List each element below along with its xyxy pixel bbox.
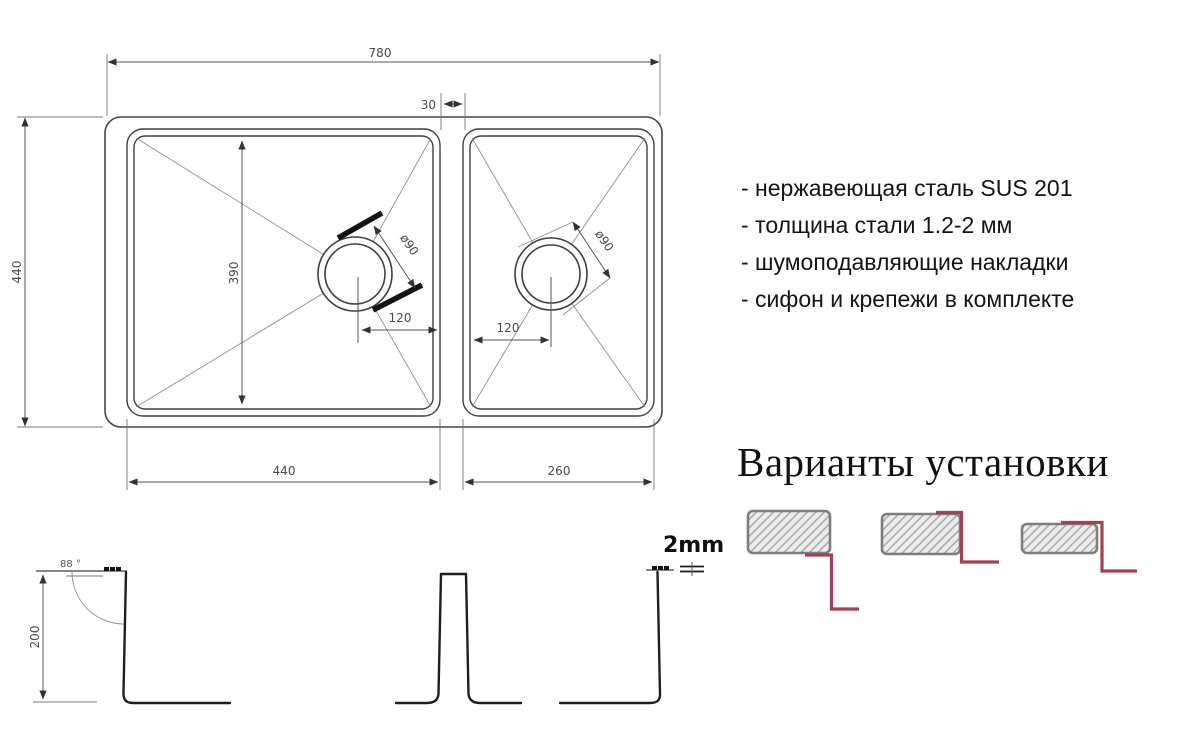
dim-label-bowl-right-width: 260 (548, 464, 571, 478)
sink-spec-sheet: 780 440 (0, 0, 1200, 748)
top-view-drawing: 780 440 (10, 46, 662, 490)
countertop-section (748, 511, 830, 553)
angle-label: 88 ° (60, 559, 81, 570)
dim-label-overall-height: 440 (10, 261, 24, 284)
countertop-section (1022, 524, 1097, 553)
countertop-section (882, 514, 960, 554)
dim-bowl-left-width: 440 (127, 419, 440, 490)
spec-list: - нержавеющая сталь SUS 201 - толщина ст… (741, 170, 1181, 318)
dim-label-bowl-depth: 200 (28, 626, 42, 649)
dim-label-bowl-left-width: 440 (273, 464, 296, 478)
installation-heading: Варианты установки (737, 438, 1157, 486)
spec-item-material: - нержавеющая сталь SUS 201 (741, 170, 1181, 207)
side-view-drawing: 88 ° 200 2mm (28, 533, 724, 703)
dim-label-bowl-left-depth: 390 (227, 262, 241, 285)
dim-bowl-right-width: 260 (463, 419, 654, 490)
installation-diagrams (748, 511, 1137, 609)
install-option-flush-mount (882, 513, 999, 563)
side-left-wall: 88 ° (36, 559, 230, 703)
spec-item-included: - сифон и крепежи в комплекте (741, 281, 1181, 318)
sink-rim-profile (805, 555, 859, 609)
dim-label-divider-gap: 30 (421, 98, 436, 112)
dim-bowl-depth: 200 (28, 575, 97, 702)
dim-label-drain-right-offset: 120 (497, 321, 520, 335)
dim-label-drain-left-offset: 120 (389, 311, 412, 325)
install-option-overmount (1022, 523, 1137, 572)
technical-drawing: 780 440 (0, 0, 1200, 748)
spec-item-thickness: - толщина стали 1.2-2 мм (741, 207, 1181, 244)
side-divider-wall (396, 574, 521, 703)
install-option-undermount (748, 511, 859, 609)
dim-label-steel-thickness: 2mm (663, 533, 724, 558)
dim-overall-height: 440 (10, 117, 103, 427)
dim-overall-width: 780 (107, 46, 660, 116)
side-right-wall (560, 566, 674, 703)
dim-label-overall-width: 780 (369, 46, 392, 60)
spec-item-noise-pads: - шумоподавляющие накладки (741, 244, 1181, 281)
